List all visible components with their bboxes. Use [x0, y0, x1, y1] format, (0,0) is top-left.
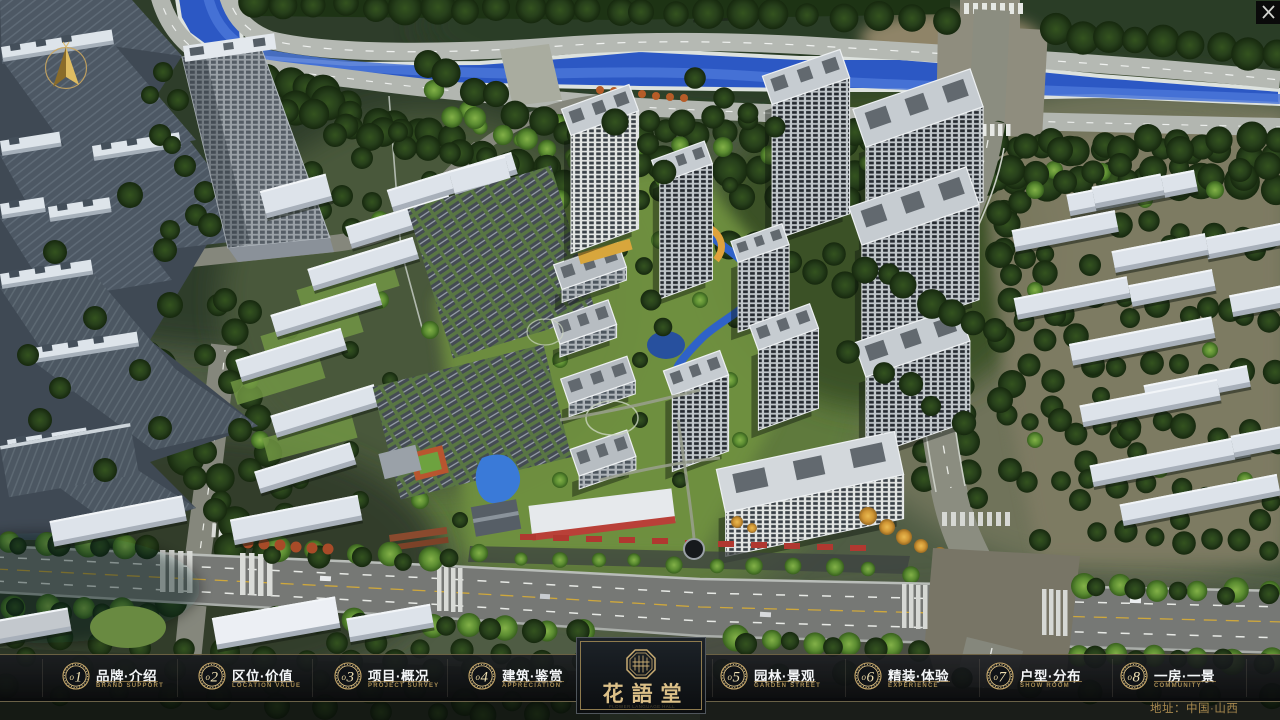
svg-text:8: 8	[1133, 670, 1141, 686]
svg-text:4: 4	[481, 670, 489, 686]
svg-text:3: 3	[346, 670, 355, 686]
svg-text:6: 6	[867, 670, 875, 686]
svg-text:5: 5	[733, 670, 741, 686]
svg-text:2: 2	[211, 670, 219, 686]
svg-text:1: 1	[75, 670, 83, 686]
